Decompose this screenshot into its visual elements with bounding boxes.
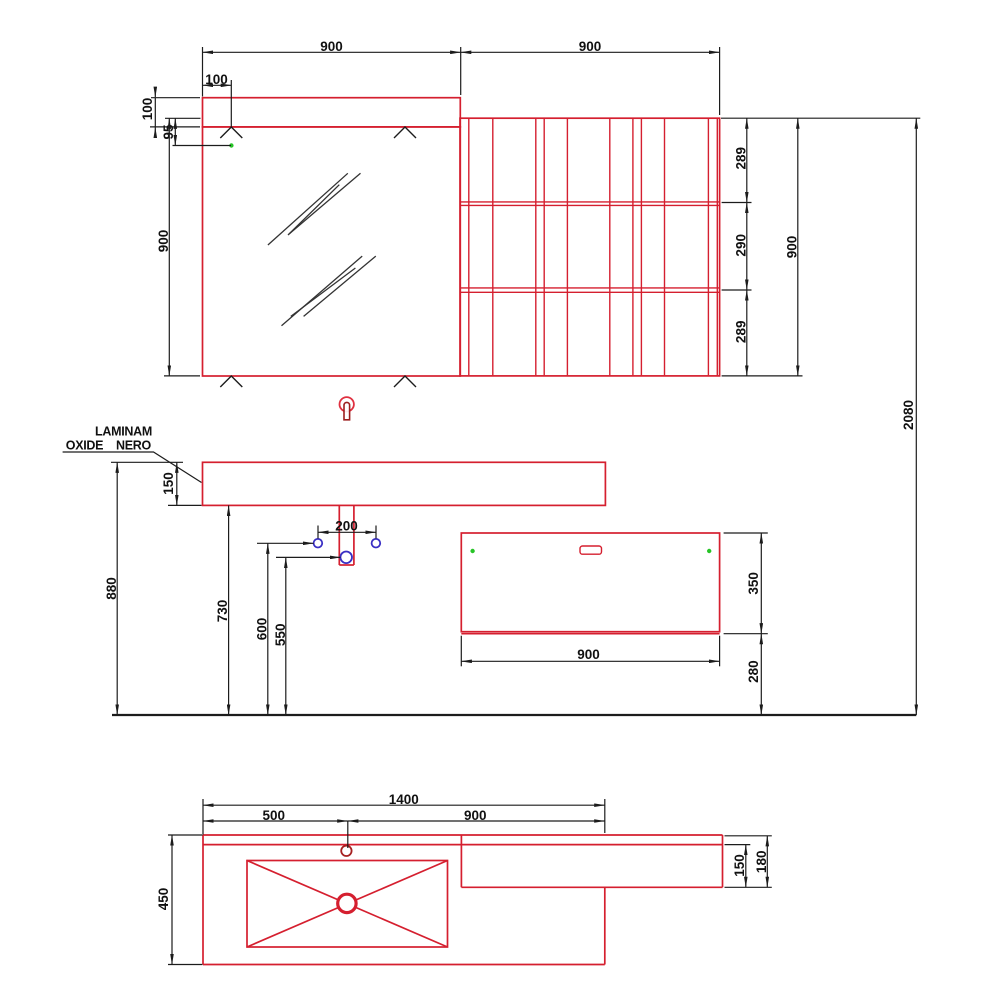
svg-text:95: 95: [161, 124, 176, 140]
svg-text:730: 730: [215, 600, 230, 623]
svg-text:900: 900: [320, 39, 343, 54]
svg-text:450: 450: [156, 888, 171, 911]
svg-text:900: 900: [464, 808, 487, 823]
svg-text:289: 289: [733, 321, 748, 344]
svg-text:350: 350: [746, 572, 761, 595]
svg-text:100: 100: [140, 98, 155, 121]
svg-text:OXIDE: OXIDE: [66, 439, 103, 453]
svg-text:1400: 1400: [389, 792, 419, 807]
svg-text:550: 550: [273, 624, 288, 647]
svg-text:NERO: NERO: [116, 439, 151, 453]
svg-text:150: 150: [732, 854, 747, 877]
svg-text:600: 600: [254, 618, 269, 641]
svg-text:180: 180: [754, 851, 769, 874]
svg-text:900: 900: [577, 647, 600, 662]
svg-text:150: 150: [161, 472, 176, 495]
svg-text:280: 280: [746, 660, 761, 683]
svg-text:LAMINAM: LAMINAM: [95, 425, 152, 439]
svg-text:100: 100: [205, 72, 228, 87]
svg-text:289: 289: [733, 147, 748, 170]
svg-text:880: 880: [104, 577, 119, 600]
svg-text:200: 200: [335, 519, 358, 534]
svg-text:900: 900: [784, 236, 799, 259]
svg-text:900: 900: [156, 230, 171, 253]
svg-text:2080: 2080: [901, 400, 916, 430]
svg-text:900: 900: [579, 39, 602, 54]
svg-text:500: 500: [263, 808, 286, 823]
svg-text:290: 290: [733, 234, 748, 257]
